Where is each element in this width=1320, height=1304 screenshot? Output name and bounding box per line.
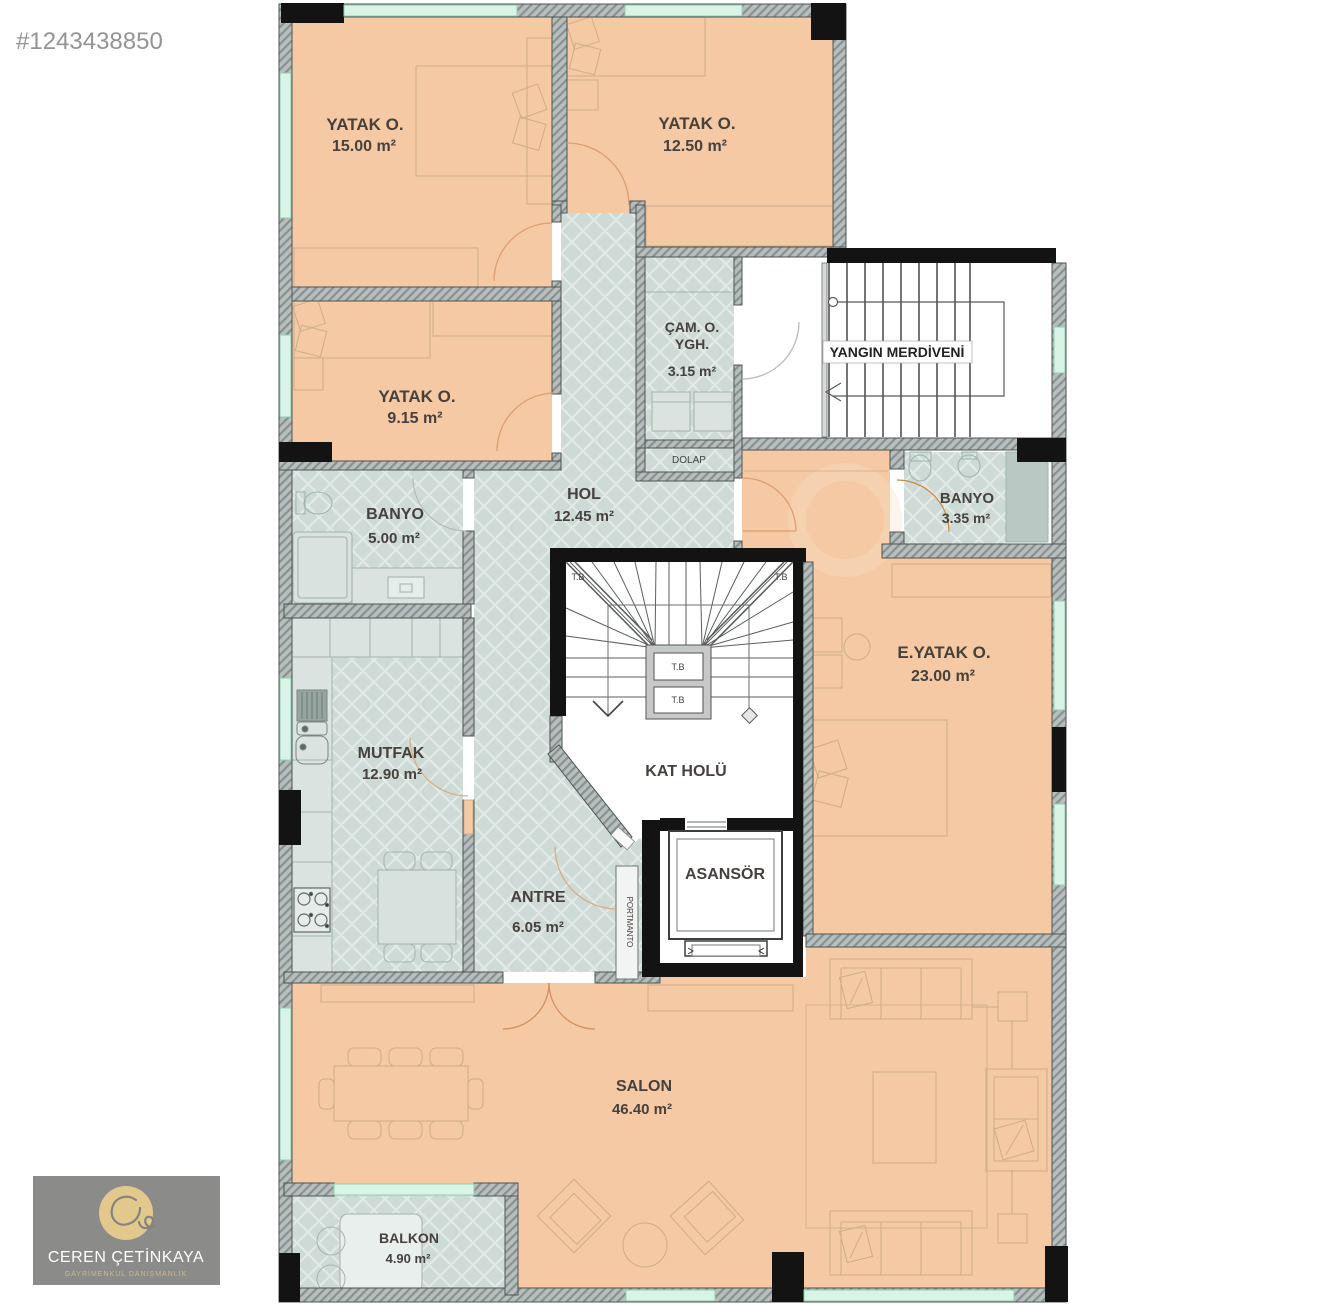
svg-text:3.35 m²: 3.35 m²: [942, 510, 991, 526]
svg-text:GAYRİMENKUL DANIŞMANLIK: GAYRİMENKUL DANIŞMANLIK: [65, 1269, 188, 1278]
svg-text:YGH.: YGH.: [675, 336, 709, 352]
svg-text:9.15 m²: 9.15 m²: [387, 410, 442, 427]
svg-text:46.40 m²: 46.40 m²: [612, 1101, 672, 1118]
svg-text:DOLAP: DOLAP: [672, 455, 706, 466]
svg-text:PORTMANTO: PORTMANTO: [625, 897, 634, 948]
svg-text:12.90 m²: 12.90 m²: [362, 766, 422, 783]
svg-text:CEREN ÇETİNKAYA: CEREN ÇETİNKAYA: [48, 1247, 204, 1266]
svg-text:MUTFAK: MUTFAK: [358, 745, 425, 762]
svg-text:BANYO: BANYO: [366, 506, 424, 523]
svg-text:15.00 m²: 15.00 m²: [332, 138, 396, 155]
svg-text:YANGIN MERDİVENİ: YANGIN MERDİVENİ: [830, 344, 965, 360]
svg-text:YATAK O.: YATAK O.: [378, 387, 455, 406]
svg-text:ANTRE: ANTRE: [510, 889, 565, 906]
svg-text:BALKON: BALKON: [379, 1230, 439, 1246]
svg-text:T.B: T.B: [671, 695, 684, 705]
svg-text:ASANSÖR: ASANSÖR: [685, 864, 765, 883]
svg-text:HOL: HOL: [567, 486, 601, 503]
svg-text:T.B: T.B: [774, 572, 787, 582]
svg-text:BANYO: BANYO: [940, 490, 995, 507]
svg-text:T.B: T.B: [571, 572, 584, 582]
svg-text:SALON: SALON: [616, 1078, 672, 1095]
svg-text:KAT HOLÜ: KAT HOLÜ: [645, 761, 726, 780]
svg-text:6.05 m²: 6.05 m²: [512, 919, 564, 936]
svg-text:YATAK O.: YATAK O.: [658, 114, 735, 133]
svg-text:E.YATAK O.: E.YATAK O.: [897, 643, 990, 662]
svg-text:ÇAM. O.: ÇAM. O.: [665, 319, 719, 335]
svg-text:23.00 m²: 23.00 m²: [911, 668, 975, 685]
svg-text:12.45 m²: 12.45 m²: [554, 508, 614, 525]
svg-text:YATAK O.: YATAK O.: [326, 115, 403, 134]
svg-text:#1243438850: #1243438850: [16, 28, 163, 55]
svg-text:3.15 m²: 3.15 m²: [668, 363, 717, 379]
svg-text:4.90 m²: 4.90 m²: [386, 1251, 431, 1266]
svg-text:12.50 m²: 12.50 m²: [663, 138, 727, 155]
svg-text:5.00 m²: 5.00 m²: [368, 530, 420, 547]
svg-text:T.B: T.B: [671, 662, 684, 672]
